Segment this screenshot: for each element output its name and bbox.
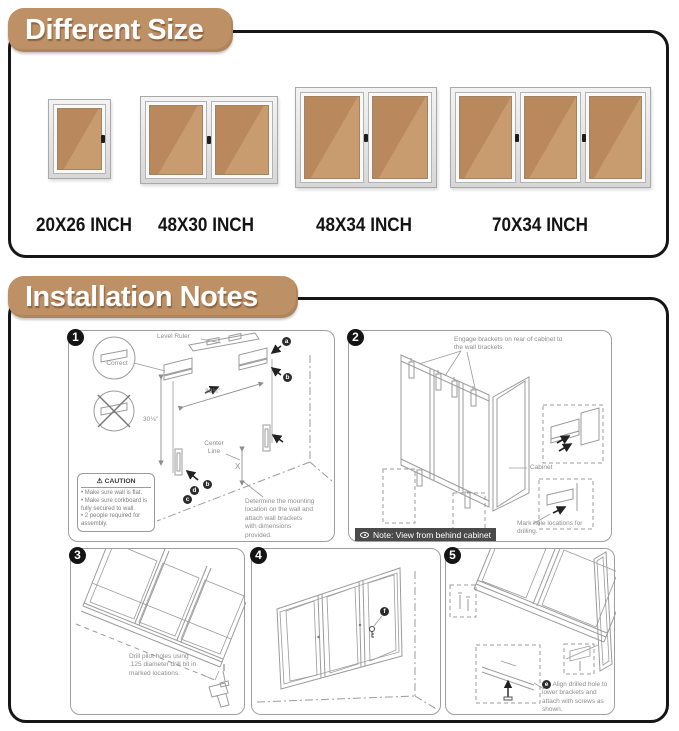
step-5-note-text: Align drilled hole to lower brackets and…: [542, 681, 607, 713]
board-door: [585, 92, 646, 183]
board-48x30: [140, 96, 278, 184]
level-ruler-label: Level Ruler: [157, 333, 203, 341]
lock-icon: [515, 134, 519, 142]
step-5-note: e Align drilled hole to lower brackets a…: [542, 680, 612, 715]
step-4-diagram: [252, 549, 442, 716]
board-door: [368, 92, 432, 183]
install-step-1-panel: 1: [68, 330, 335, 542]
size-label-48x30: 48X30 INCH: [143, 215, 269, 239]
engage-brackets-label: Engage brackets on rear of cabinet to th…: [454, 336, 566, 353]
cork-surface: [304, 96, 360, 179]
board-door: [300, 92, 364, 183]
step-3-note: Drill pilot holes using .125 diameter dr…: [129, 653, 203, 678]
cork-surface: [215, 105, 269, 175]
step-3-badge: 3: [69, 547, 86, 564]
part-letter-c: c: [183, 495, 192, 504]
board-door: [211, 101, 273, 179]
part-letter-b: b: [283, 373, 292, 382]
cork-surface: [149, 105, 203, 175]
board-door: [520, 92, 581, 183]
part-letter-b2: b: [203, 480, 212, 489]
dim-width-label: 39¾": [205, 388, 220, 396]
install-step-5-panel: 5: [445, 548, 615, 715]
warning-icon: ⚠: [96, 478, 102, 485]
lock-icon: [364, 134, 368, 142]
lock-icon: [101, 135, 105, 143]
step-5-badge: 5: [444, 547, 461, 564]
different-size-title-pill: Different Size: [8, 8, 233, 52]
different-size-title: Different Size: [25, 14, 203, 47]
board-20x26: [48, 99, 111, 179]
step-3-diagram: [71, 549, 246, 716]
board-door: [145, 101, 207, 179]
cork-surface: [589, 96, 642, 179]
size-label-48x34: 48X34 INCH: [301, 215, 427, 239]
correct-label: Correct: [100, 360, 134, 368]
cork-surface: [372, 96, 428, 179]
step-4-badge: 4: [250, 547, 267, 564]
size-label-70x34: 70X34 INCH: [477, 215, 603, 239]
product-infographic: Different Size 20X26 INCH 48X30 INCH 48X…: [0, 0, 679, 731]
install-step-2-panel: 2: [348, 330, 612, 542]
board-70x34: [450, 87, 651, 188]
caution-item: Make sure corkboard is fully secured to …: [81, 498, 151, 514]
part-letter-a: a: [282, 337, 291, 346]
dim-height-label: 30⅛": [143, 416, 158, 424]
caution-box: ⚠CAUTION Make sure wall is flat. Make su…: [77, 473, 155, 532]
step-2-diagram: [349, 331, 613, 543]
view-note-text: Note: View from behind cabinet: [373, 530, 491, 540]
view-note-bar: Note: View from behind cabinet: [355, 528, 496, 541]
caution-item: 2 people required for assembly.: [81, 513, 151, 529]
cabinet-label: Cabinet: [530, 464, 552, 472]
part-letter-f: f: [380, 607, 389, 616]
step-2-badge: 2: [347, 329, 364, 346]
step-1-badge: 1: [67, 329, 84, 346]
mark-holes-label: Mark hole locations for drilling.: [517, 520, 591, 537]
cork-surface: [57, 108, 102, 170]
lock-icon: [207, 136, 211, 144]
step-1-note: Determine the mounting location on the w…: [245, 498, 315, 540]
install-step-3-panel: 3: [70, 548, 245, 715]
size-label-20x26: 20X26 INCH: [21, 215, 147, 239]
lock-icon: [582, 134, 586, 142]
eye-icon: [360, 532, 369, 538]
cork-surface: [459, 96, 512, 179]
install-step-4-panel: 4: [251, 548, 441, 715]
part-letter-d: d: [190, 486, 199, 495]
x-dim-label: X: [235, 462, 240, 472]
installation-notes-title-pill: Installation Notes: [8, 276, 298, 318]
cork-surface: [524, 96, 577, 179]
marker-e: e: [542, 680, 551, 689]
installation-notes-title: Installation Notes: [25, 281, 258, 314]
board-48x34: [295, 87, 437, 188]
board-door: [455, 92, 516, 183]
board-door: [53, 104, 106, 174]
center-line-label: Center Line: [199, 440, 229, 457]
caution-title: ⚠CAUTION: [81, 477, 151, 488]
caution-item: Make sure wall is flat.: [81, 490, 151, 498]
